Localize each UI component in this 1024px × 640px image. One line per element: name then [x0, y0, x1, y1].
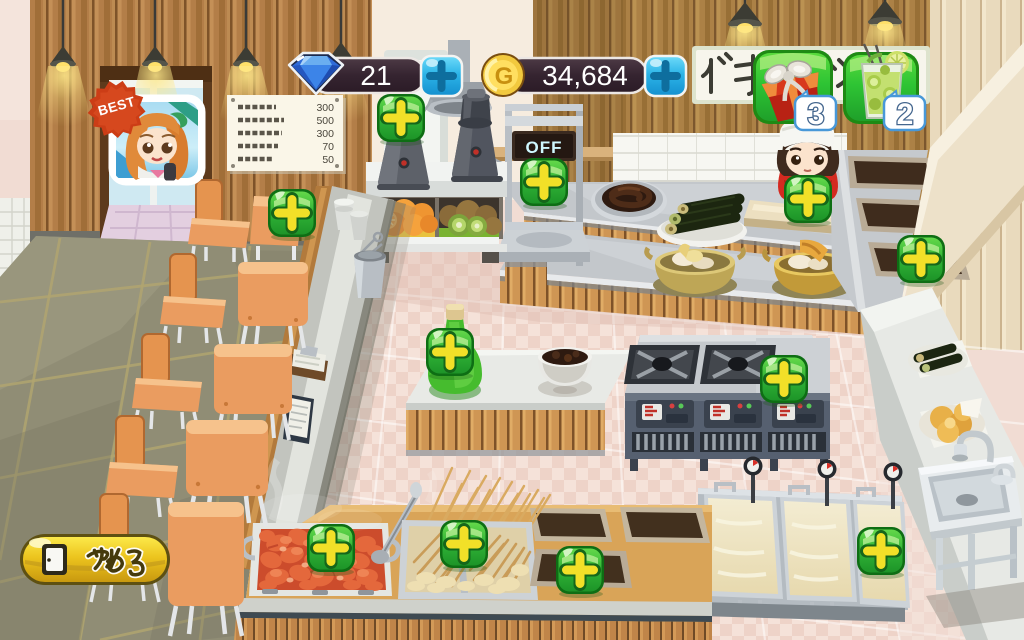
svg-text:G: G — [495, 63, 514, 90]
svg-text:50: 50 — [322, 154, 334, 166]
svg-text:34,684: 34,684 — [542, 60, 628, 91]
svg-text:3: 3 — [808, 98, 825, 131]
svg-text:70: 70 — [322, 141, 334, 153]
svg-text:OFF: OFF — [526, 138, 563, 157]
svg-text:300: 300 — [316, 128, 334, 140]
svg-text:300: 300 — [316, 102, 334, 114]
svg-text:500: 500 — [316, 115, 334, 127]
svg-text:21: 21 — [360, 60, 391, 91]
svg-text:2: 2 — [897, 98, 914, 131]
